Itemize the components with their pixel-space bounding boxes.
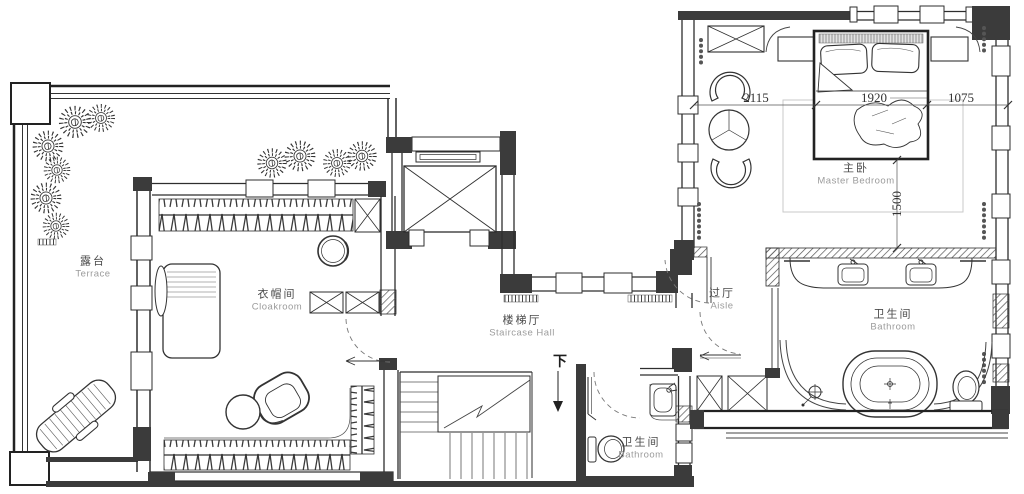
terrace-lounge-chair [27,370,124,462]
staircase-hall-walls [500,249,692,302]
master-bathroom [690,258,1009,438]
elevator [386,131,516,278]
staircase [400,371,563,479]
cloakroom-furniture [155,236,348,430]
stair-down-arrow [553,401,563,412]
dimension-2115: 2115 [743,90,769,106]
master-bedroom-furniture [699,26,984,384]
dimension-1920: 1920 [861,90,887,106]
stair-down-label: 下 [553,351,567,371]
guest-bathroom [576,352,694,486]
dimension-1075: 1075 [948,90,974,106]
floor-plan-drawing [0,0,1024,494]
toilet [953,371,979,403]
dimension-1500: 1500 [889,191,905,217]
floor-plan-canvas: 露台 Terrace 衣帽间 Cloakroom 楼梯厅 Staircase H… [0,0,1024,494]
